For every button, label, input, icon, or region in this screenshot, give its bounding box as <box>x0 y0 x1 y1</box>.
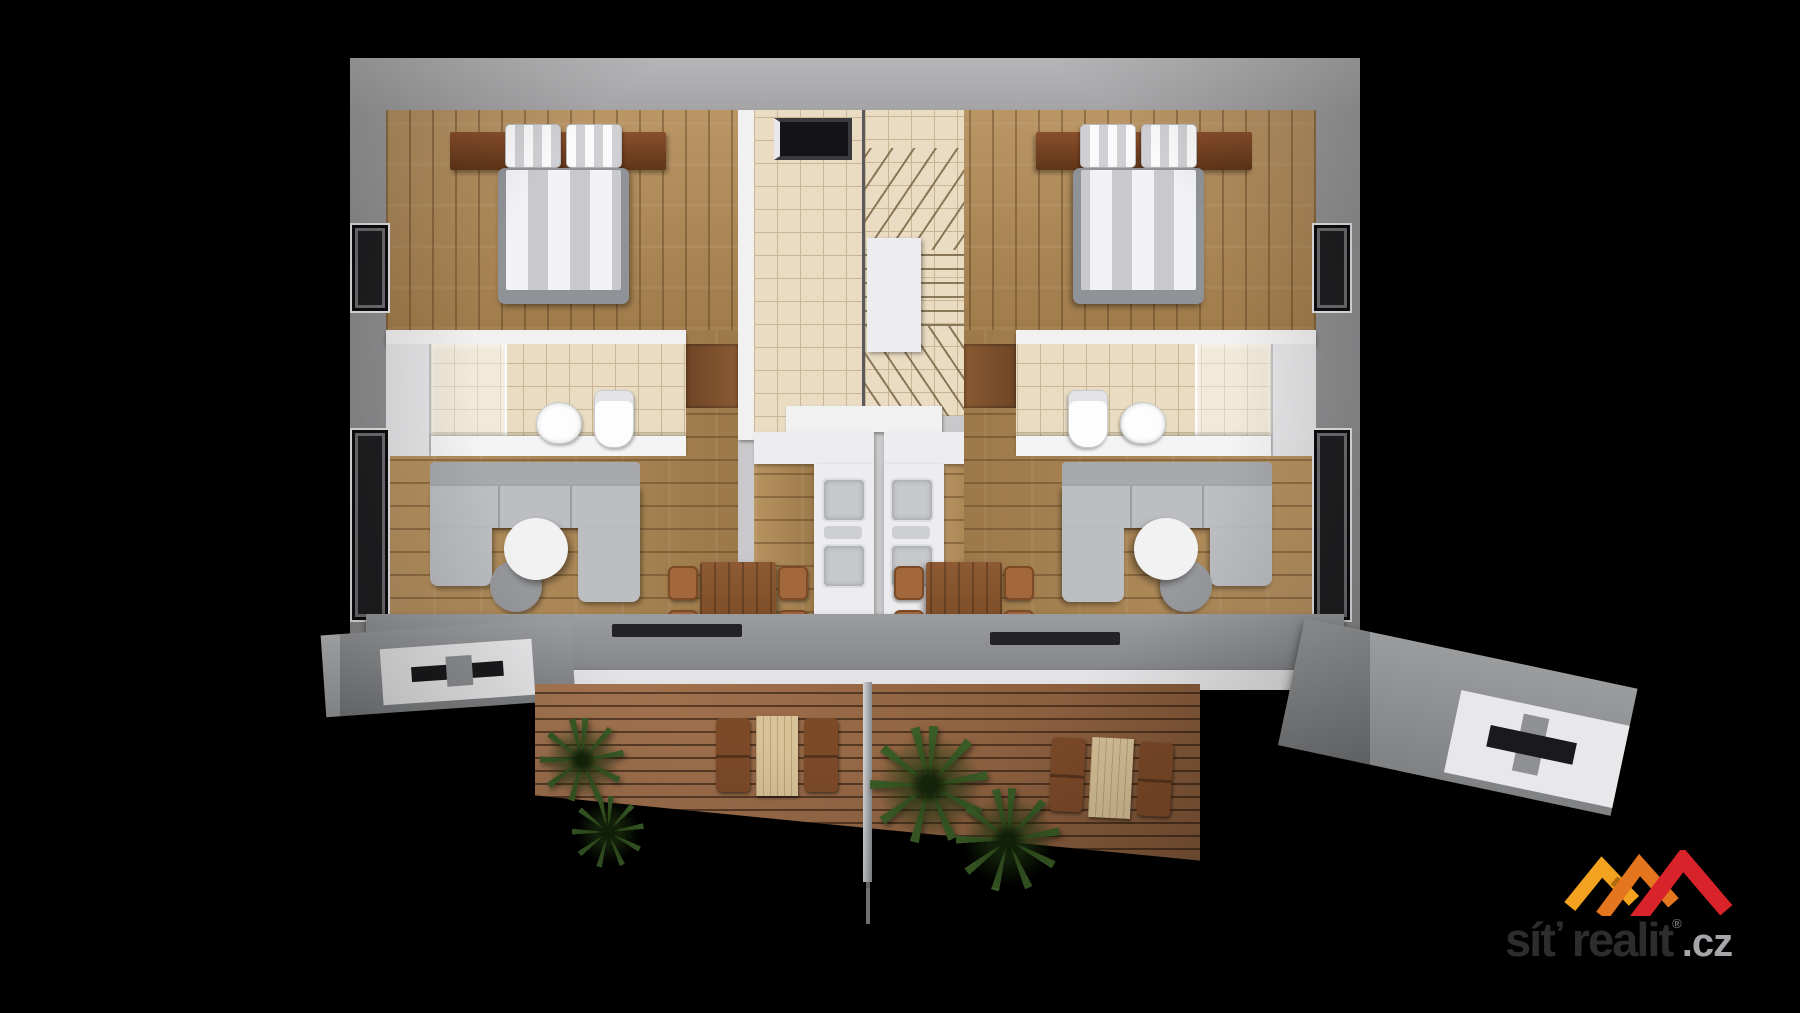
dining-chair <box>894 566 924 600</box>
dining-chair <box>778 566 808 600</box>
staircase <box>862 110 974 416</box>
palm-plant <box>540 718 624 802</box>
stair-doorway <box>774 118 852 160</box>
outdoor-sofa <box>1048 737 1086 813</box>
toilet <box>1068 390 1108 448</box>
kitchen-sink <box>822 544 866 588</box>
bedroom-wall <box>1016 330 1316 344</box>
kitchen-counter-bar-left <box>754 432 874 464</box>
balcony-right-wing <box>1278 618 1638 816</box>
unit-right <box>964 110 1316 622</box>
sofa-chaise-right <box>1062 528 1124 602</box>
sofa-arm-left <box>1210 528 1272 586</box>
roof-logo-icon <box>1559 850 1739 916</box>
stair-winders-top <box>865 148 977 250</box>
outdoor-seating-set <box>716 714 838 798</box>
dining-chair <box>1004 566 1034 600</box>
bathroom-closet <box>1271 344 1316 456</box>
outdoor-seating-set <box>1048 733 1174 823</box>
landing-wall <box>786 406 942 432</box>
door-threshold <box>612 624 742 637</box>
logo-brand-text: síť realit <box>1505 913 1672 966</box>
bed-duvet <box>1081 170 1196 290</box>
kitchen-sink <box>890 478 934 522</box>
outdoor-sofa <box>804 718 838 792</box>
outdoor-sofa <box>1136 741 1174 817</box>
coffee-table <box>504 518 568 580</box>
stage: síť realit®.cz <box>0 0 1800 1013</box>
palm-plant <box>956 788 1060 892</box>
palm-plant <box>572 796 644 868</box>
bed-pillow <box>566 124 622 168</box>
logo-tld: .cz <box>1682 921 1732 965</box>
double-bed <box>498 168 629 304</box>
bed-pillow <box>1141 124 1197 168</box>
outdoor-table <box>756 716 798 796</box>
support-pole-tip <box>866 882 870 924</box>
kitchen-sink-small <box>824 526 862 539</box>
sofa-back <box>1062 462 1272 486</box>
bidet <box>536 402 582 444</box>
dining-chair <box>668 566 698 600</box>
window <box>1314 225 1350 311</box>
sofa-chaise-right <box>578 528 640 602</box>
bedroom-wall <box>386 330 686 344</box>
bathroom-closet <box>386 344 431 456</box>
window <box>352 225 388 311</box>
window <box>352 430 388 620</box>
coffee-table <box>1134 518 1198 580</box>
bidet <box>1120 402 1166 444</box>
stair-core-wall <box>867 238 921 352</box>
logo-wordmark: síť realit®.cz <box>1505 912 1795 972</box>
window <box>1314 430 1350 620</box>
wardrobe <box>686 344 738 408</box>
corridor-wall-left <box>738 110 754 440</box>
outdoor-sofa <box>716 718 750 792</box>
sit-realit-logo: síť realit®.cz <box>1505 850 1795 980</box>
bed-pillow <box>1080 124 1136 168</box>
outdoor-side-table-top <box>445 655 473 687</box>
wardrobe <box>964 344 1016 408</box>
kitchen-sink <box>822 478 866 522</box>
logo-registered-mark: ® <box>1672 916 1682 931</box>
unit-left <box>386 110 738 622</box>
toilet <box>594 390 634 448</box>
sofa-arm-left <box>430 528 492 586</box>
bed-duvet <box>506 170 621 290</box>
sofa-back <box>430 462 640 486</box>
door-threshold <box>990 632 1120 645</box>
bed-pillow <box>505 124 561 168</box>
floor-plan <box>350 58 1360 668</box>
kitchen-sink-small <box>892 526 930 539</box>
outdoor-table <box>1088 737 1134 819</box>
double-bed <box>1073 168 1204 304</box>
